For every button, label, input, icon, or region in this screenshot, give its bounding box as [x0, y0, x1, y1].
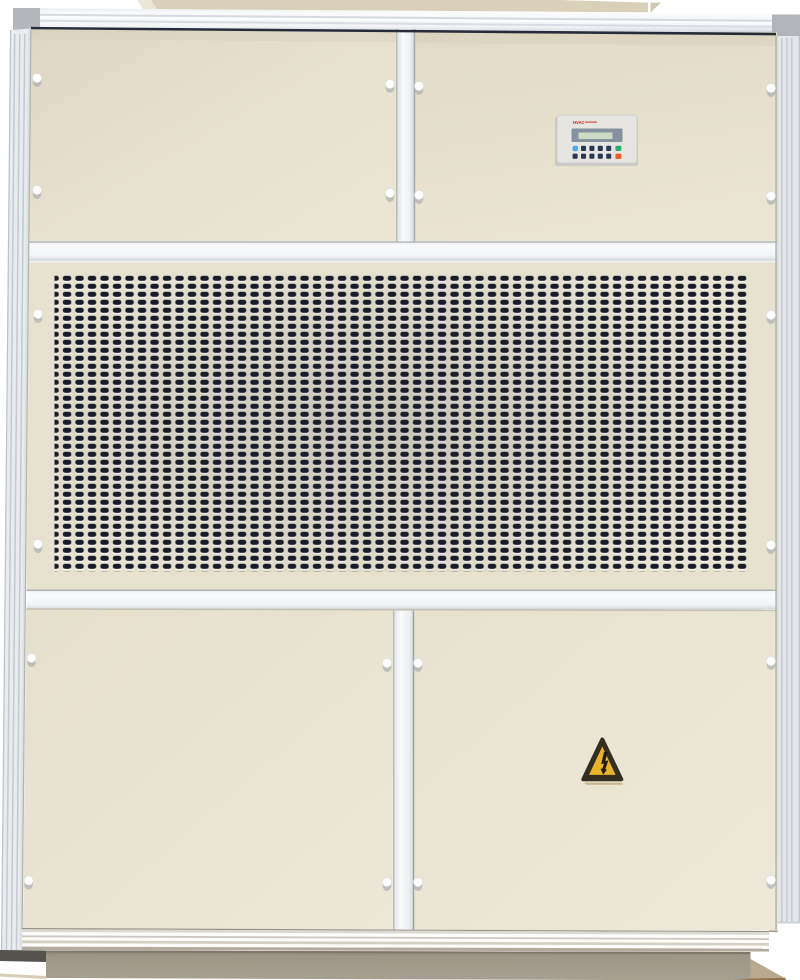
svg-text:HVAC: HVAC	[573, 120, 585, 125]
